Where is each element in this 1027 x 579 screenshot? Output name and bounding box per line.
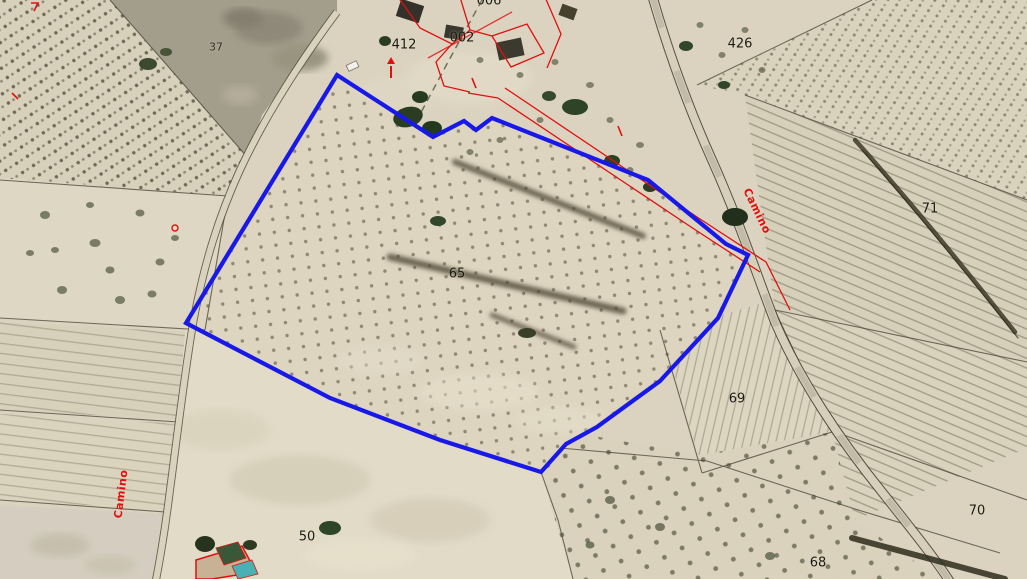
parcel-label-65: 65 <box>449 268 466 281</box>
building-label-002: 002 <box>450 32 475 45</box>
map-viewport[interactable]: 65 426 71 69 70 68 50 37 002 412 006 Cam… <box>0 0 1027 579</box>
parcel-label-68: 68 <box>810 557 827 570</box>
parcel-label-69: 69 <box>729 393 746 406</box>
parcel-label-50: 50 <box>299 531 316 544</box>
parcel-label-70: 70 <box>969 505 986 518</box>
fields-layer <box>0 0 1027 579</box>
building-label-412: 412 <box>392 39 417 52</box>
building-label-006: 006 <box>477 0 502 8</box>
aerial-basemap <box>0 0 1027 579</box>
parcel-label-37: 37 <box>209 42 223 53</box>
parcel-label-426: 426 <box>728 38 753 51</box>
parcel-label-71: 71 <box>922 203 939 216</box>
